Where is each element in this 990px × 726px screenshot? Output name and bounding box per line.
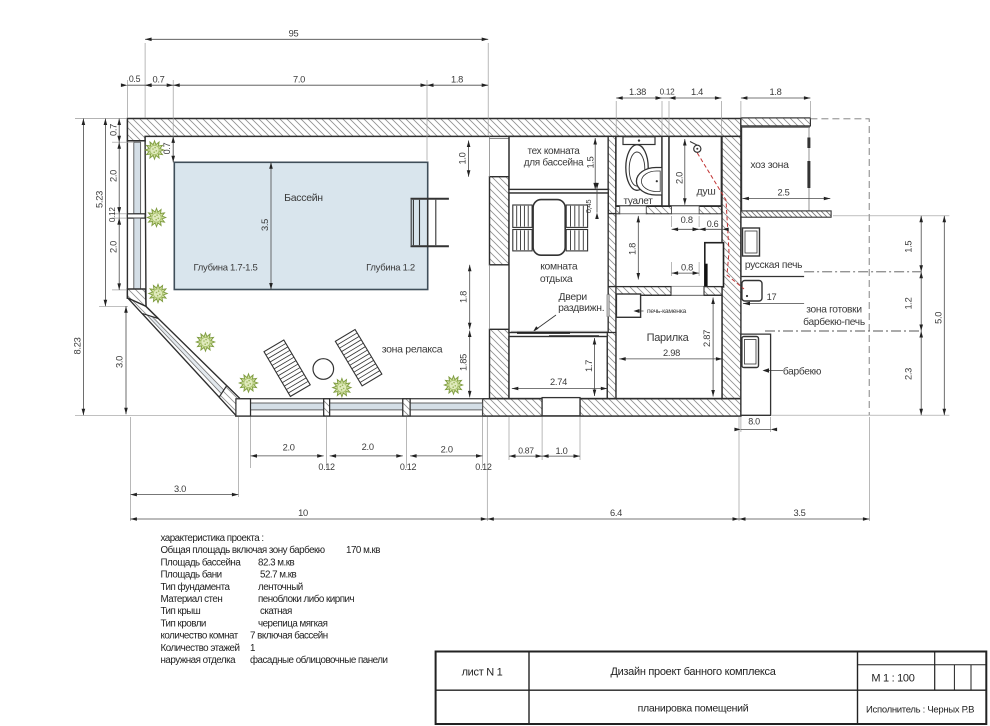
svg-text:1.8: 1.8 <box>769 87 781 97</box>
svg-text:5.23: 5.23 <box>94 191 104 208</box>
svg-text:0.5: 0.5 <box>129 74 141 84</box>
svg-text:0.7: 0.7 <box>162 142 172 154</box>
svg-text:2.87: 2.87 <box>702 330 712 347</box>
svg-text:2.98: 2.98 <box>663 348 680 358</box>
svg-text:фасадные облицовочные панели: фасадные облицовочные панели <box>250 655 388 666</box>
svg-text:наружная отделка: наружная отделка <box>161 655 237 666</box>
svg-text:2.0: 2.0 <box>108 170 118 182</box>
svg-text:Бассейн: Бассейн <box>284 192 323 204</box>
svg-text:1.8: 1.8 <box>451 74 463 84</box>
svg-text:печь-каменка: печь-каменка <box>647 308 687 315</box>
svg-text:6.4: 6.4 <box>610 508 622 518</box>
svg-text:1.38: 1.38 <box>629 87 646 97</box>
svg-text:1.7: 1.7 <box>584 360 594 372</box>
svg-text:1.0: 1.0 <box>555 446 567 456</box>
svg-text:лист N 1: лист N 1 <box>462 667 503 679</box>
svg-text:Тип фундамента: Тип фундамента <box>161 582 231 593</box>
svg-text:0.12: 0.12 <box>475 462 492 472</box>
svg-text:1.8: 1.8 <box>628 243 638 255</box>
svg-text:тех комната: тех комната <box>527 146 580 157</box>
svg-text:для бассейна: для бассейна <box>524 157 584 169</box>
svg-text:5.0: 5.0 <box>933 312 943 324</box>
svg-text:Тип крыш: Тип крыш <box>161 606 201 617</box>
svg-text:2.0: 2.0 <box>362 442 374 452</box>
svg-text:Глубина 1.2: Глубина 1.2 <box>366 263 415 274</box>
svg-text:0.12: 0.12 <box>318 462 335 472</box>
svg-text:1.4: 1.4 <box>691 87 703 97</box>
svg-text:1.5: 1.5 <box>585 156 595 168</box>
svg-text:Двери: Двери <box>559 292 588 303</box>
svg-text:0.6: 0.6 <box>707 219 719 229</box>
svg-text:2.3: 2.3 <box>903 368 913 380</box>
svg-text:Площадь бани: Площадь бани <box>161 570 222 581</box>
svg-text:3.0: 3.0 <box>174 484 186 494</box>
svg-text:раздвижн.: раздвижн. <box>558 303 604 314</box>
svg-text:барбекю: барбекю <box>783 365 822 377</box>
svg-text:2.0: 2.0 <box>441 444 453 454</box>
svg-text:барбекю-печь: барбекю-печь <box>803 316 865 328</box>
svg-text:ленточный: ленточный <box>258 582 303 593</box>
svg-text:душ: душ <box>697 186 716 198</box>
svg-text:черепица мягкая: черепица мягкая <box>258 618 328 629</box>
svg-text:Исполнитель : Черных Р.В: Исполнитель : Черных Р.В <box>866 705 974 716</box>
svg-text:95: 95 <box>289 28 299 38</box>
svg-text:комната: комната <box>540 262 578 273</box>
svg-text:зона готовки: зона готовки <box>806 304 861 315</box>
svg-text:скатная: скатная <box>260 606 292 617</box>
svg-text:8.0: 8.0 <box>748 417 760 427</box>
svg-text:3.5: 3.5 <box>260 219 270 231</box>
svg-text:пеноблоки либо кирпич: пеноблоки либо кирпич <box>258 594 354 605</box>
svg-text:3.5: 3.5 <box>793 508 805 518</box>
svg-text:0.12: 0.12 <box>108 207 117 222</box>
svg-text:1.8: 1.8 <box>458 291 468 303</box>
svg-text:2.0: 2.0 <box>674 172 684 184</box>
svg-text:2.5: 2.5 <box>777 187 789 197</box>
svg-text:1.2: 1.2 <box>903 297 913 309</box>
svg-text:1.5: 1.5 <box>903 241 913 253</box>
svg-text:Площадь бассейна: Площадь бассейна <box>161 557 242 568</box>
svg-text:М 1 : 100: М 1 : 100 <box>871 673 914 685</box>
svg-text:1.85: 1.85 <box>458 354 468 371</box>
svg-text:10: 10 <box>298 508 308 518</box>
svg-text:0.12: 0.12 <box>400 462 417 472</box>
svg-text:Общая площадь включая зону бар: Общая площадь включая зону барбекю <box>161 545 325 556</box>
svg-text:7.0: 7.0 <box>293 74 305 84</box>
svg-text:зона релакса: зона релакса <box>382 343 443 355</box>
svg-text:8.23: 8.23 <box>72 337 82 354</box>
svg-text:туалет: туалет <box>624 196 654 207</box>
svg-text:2.0: 2.0 <box>283 442 295 452</box>
svg-text:82.3 м.кв: 82.3 м.кв <box>258 557 295 568</box>
svg-text:Тип кровли: Тип кровли <box>161 618 206 629</box>
svg-text:Парилка: Парилка <box>647 332 690 344</box>
svg-text:0.7: 0.7 <box>152 74 164 84</box>
svg-text:1: 1 <box>250 643 255 654</box>
svg-text:2.0: 2.0 <box>108 241 118 253</box>
svg-text:17: 17 <box>767 292 777 302</box>
svg-text:Глубина 1.7-1.5: Глубина 1.7-1.5 <box>193 263 257 274</box>
svg-text:Материал стен: Материал стен <box>161 594 223 605</box>
svg-text:52.7 м.кв: 52.7 м.кв <box>260 570 297 581</box>
svg-text:планировка помещений: планировка помещений <box>638 703 749 715</box>
svg-text:характеристика проекта :: характеристика проекта : <box>161 533 264 544</box>
svg-text:количество комнат: количество комнат <box>161 631 239 642</box>
svg-text:170 м.кв: 170 м.кв <box>346 545 380 556</box>
svg-text:0.87: 0.87 <box>518 446 534 456</box>
svg-text:0.8: 0.8 <box>681 263 693 273</box>
svg-text:0.8: 0.8 <box>681 215 693 225</box>
svg-text:1.0: 1.0 <box>457 152 467 164</box>
svg-text:русская печь: русская печь <box>745 260 802 271</box>
svg-text:7 включая бассейн: 7 включая бассейн <box>250 631 328 642</box>
svg-text:Дизайн проект банного комплекс: Дизайн проект банного комплекса <box>610 666 776 678</box>
svg-text:отдыха: отдыха <box>540 274 573 285</box>
svg-text:0.12: 0.12 <box>660 87 675 96</box>
svg-text:Количество этажей: Количество этажей <box>161 643 240 654</box>
svg-text:0,45: 0,45 <box>584 200 593 214</box>
svg-text:0.7: 0.7 <box>108 124 118 136</box>
svg-text:3.0: 3.0 <box>114 356 124 368</box>
svg-text:хоз зона: хоз зона <box>750 159 789 171</box>
svg-text:2.74: 2.74 <box>550 377 567 387</box>
